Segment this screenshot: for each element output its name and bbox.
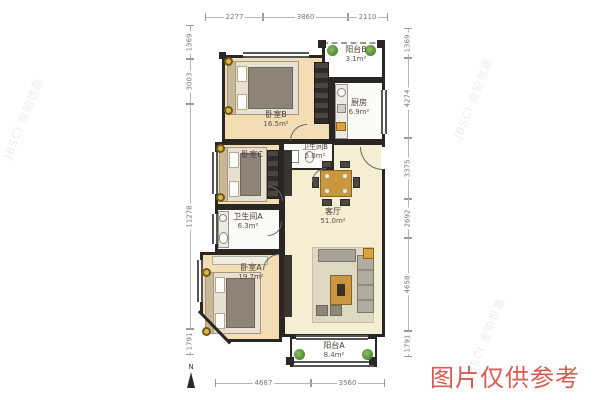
ottoman xyxy=(316,305,328,316)
floorplan-canvas: JBSCI 金铂世嘉 JBSCI 金铂世嘉 JBSCI 金铂世嘉 xyxy=(0,0,600,400)
plant-icon xyxy=(294,349,305,360)
tv-stand xyxy=(284,255,292,317)
room-label-bedroom-b: 卧室B16.5m² xyxy=(252,110,300,129)
dim-top-1: 2277 xyxy=(205,13,264,21)
dim-top-2: 3860 xyxy=(262,13,349,21)
sofa xyxy=(357,255,374,313)
room-label-living: 客厅51.0m² xyxy=(307,207,359,226)
nightstand-lamp-icon xyxy=(216,193,225,202)
bedroom-b-bed xyxy=(227,61,299,115)
window xyxy=(243,52,309,58)
north-label: N xyxy=(182,364,200,371)
room-label-balcony-b: 阳台B3.1m² xyxy=(334,45,378,64)
dim-bottom-2: 3560 xyxy=(310,379,385,387)
dining-chair xyxy=(322,199,332,206)
compass-needle-icon xyxy=(187,372,195,388)
dining-chair xyxy=(322,161,332,168)
plate-icon xyxy=(342,173,348,179)
window xyxy=(212,214,218,244)
bedroom-b-wardrobe xyxy=(314,62,329,124)
side-table xyxy=(363,248,374,259)
dim-right-6: 1791 xyxy=(404,330,412,357)
dining-chair xyxy=(340,199,350,206)
dim-right-3: 3375 xyxy=(404,137,412,200)
wall-column xyxy=(377,40,385,48)
brand-watermark: JBSCI 金铂世嘉 xyxy=(449,55,496,141)
ottoman xyxy=(330,305,342,316)
dim-bottom-1: 4687 xyxy=(215,379,312,387)
kitchen-cabinet xyxy=(336,122,346,131)
window xyxy=(197,260,203,302)
dim-right-2: 4274 xyxy=(404,57,412,139)
north-arrow: N xyxy=(182,364,200,396)
dim-right-1: 1369 xyxy=(404,28,412,59)
dim-left-3: 11278 xyxy=(186,103,194,330)
window xyxy=(381,90,387,134)
room-label-balcony-a: 阳台A8.4m² xyxy=(312,341,356,360)
dim-right-5: 4658 xyxy=(404,237,412,332)
coffee-table-decor xyxy=(337,284,345,296)
dining-chair xyxy=(340,161,350,168)
cabinet xyxy=(284,150,292,196)
dim-left-1: 1369 xyxy=(186,25,194,60)
nightstand-lamp-icon xyxy=(224,106,233,115)
room-label-kitchen: 厨房6.9m² xyxy=(338,98,380,117)
window xyxy=(212,152,218,194)
room-label-bathroom-b: 卫生间B5.0m² xyxy=(297,143,333,161)
room-label-bedroom-a: 卧室A19.7m² xyxy=(226,263,276,282)
window xyxy=(296,335,368,340)
sofa xyxy=(318,249,356,262)
wall-column xyxy=(286,357,294,365)
plate-icon xyxy=(342,188,348,194)
plate-icon xyxy=(324,188,330,194)
nightstand-lamp-icon xyxy=(202,327,211,336)
nightstand-lamp-icon xyxy=(224,57,233,66)
dim-top-3: 2110 xyxy=(347,13,388,21)
plant-icon xyxy=(362,349,373,360)
room-label-bedroom-c: 卧室C xyxy=(232,150,272,160)
brand-watermark: JBSCI 金铂世嘉 xyxy=(0,75,47,161)
nightstand-lamp-icon xyxy=(202,268,211,277)
toilet-icon xyxy=(219,232,228,244)
nightstand-lamp-icon xyxy=(216,144,225,153)
room-label-bathroom-a: 卫生间A6.3m² xyxy=(222,212,274,231)
dim-left-4: 1791 xyxy=(186,328,194,355)
dim-right-4: 2692 xyxy=(404,198,412,239)
wall-column xyxy=(318,40,326,48)
dim-left-2: 3003 xyxy=(186,58,194,105)
kitchen-sink-icon xyxy=(337,88,346,97)
reference-notice: 图片仅供参考 xyxy=(430,358,600,393)
window xyxy=(293,361,374,367)
dining-chair xyxy=(353,177,360,188)
